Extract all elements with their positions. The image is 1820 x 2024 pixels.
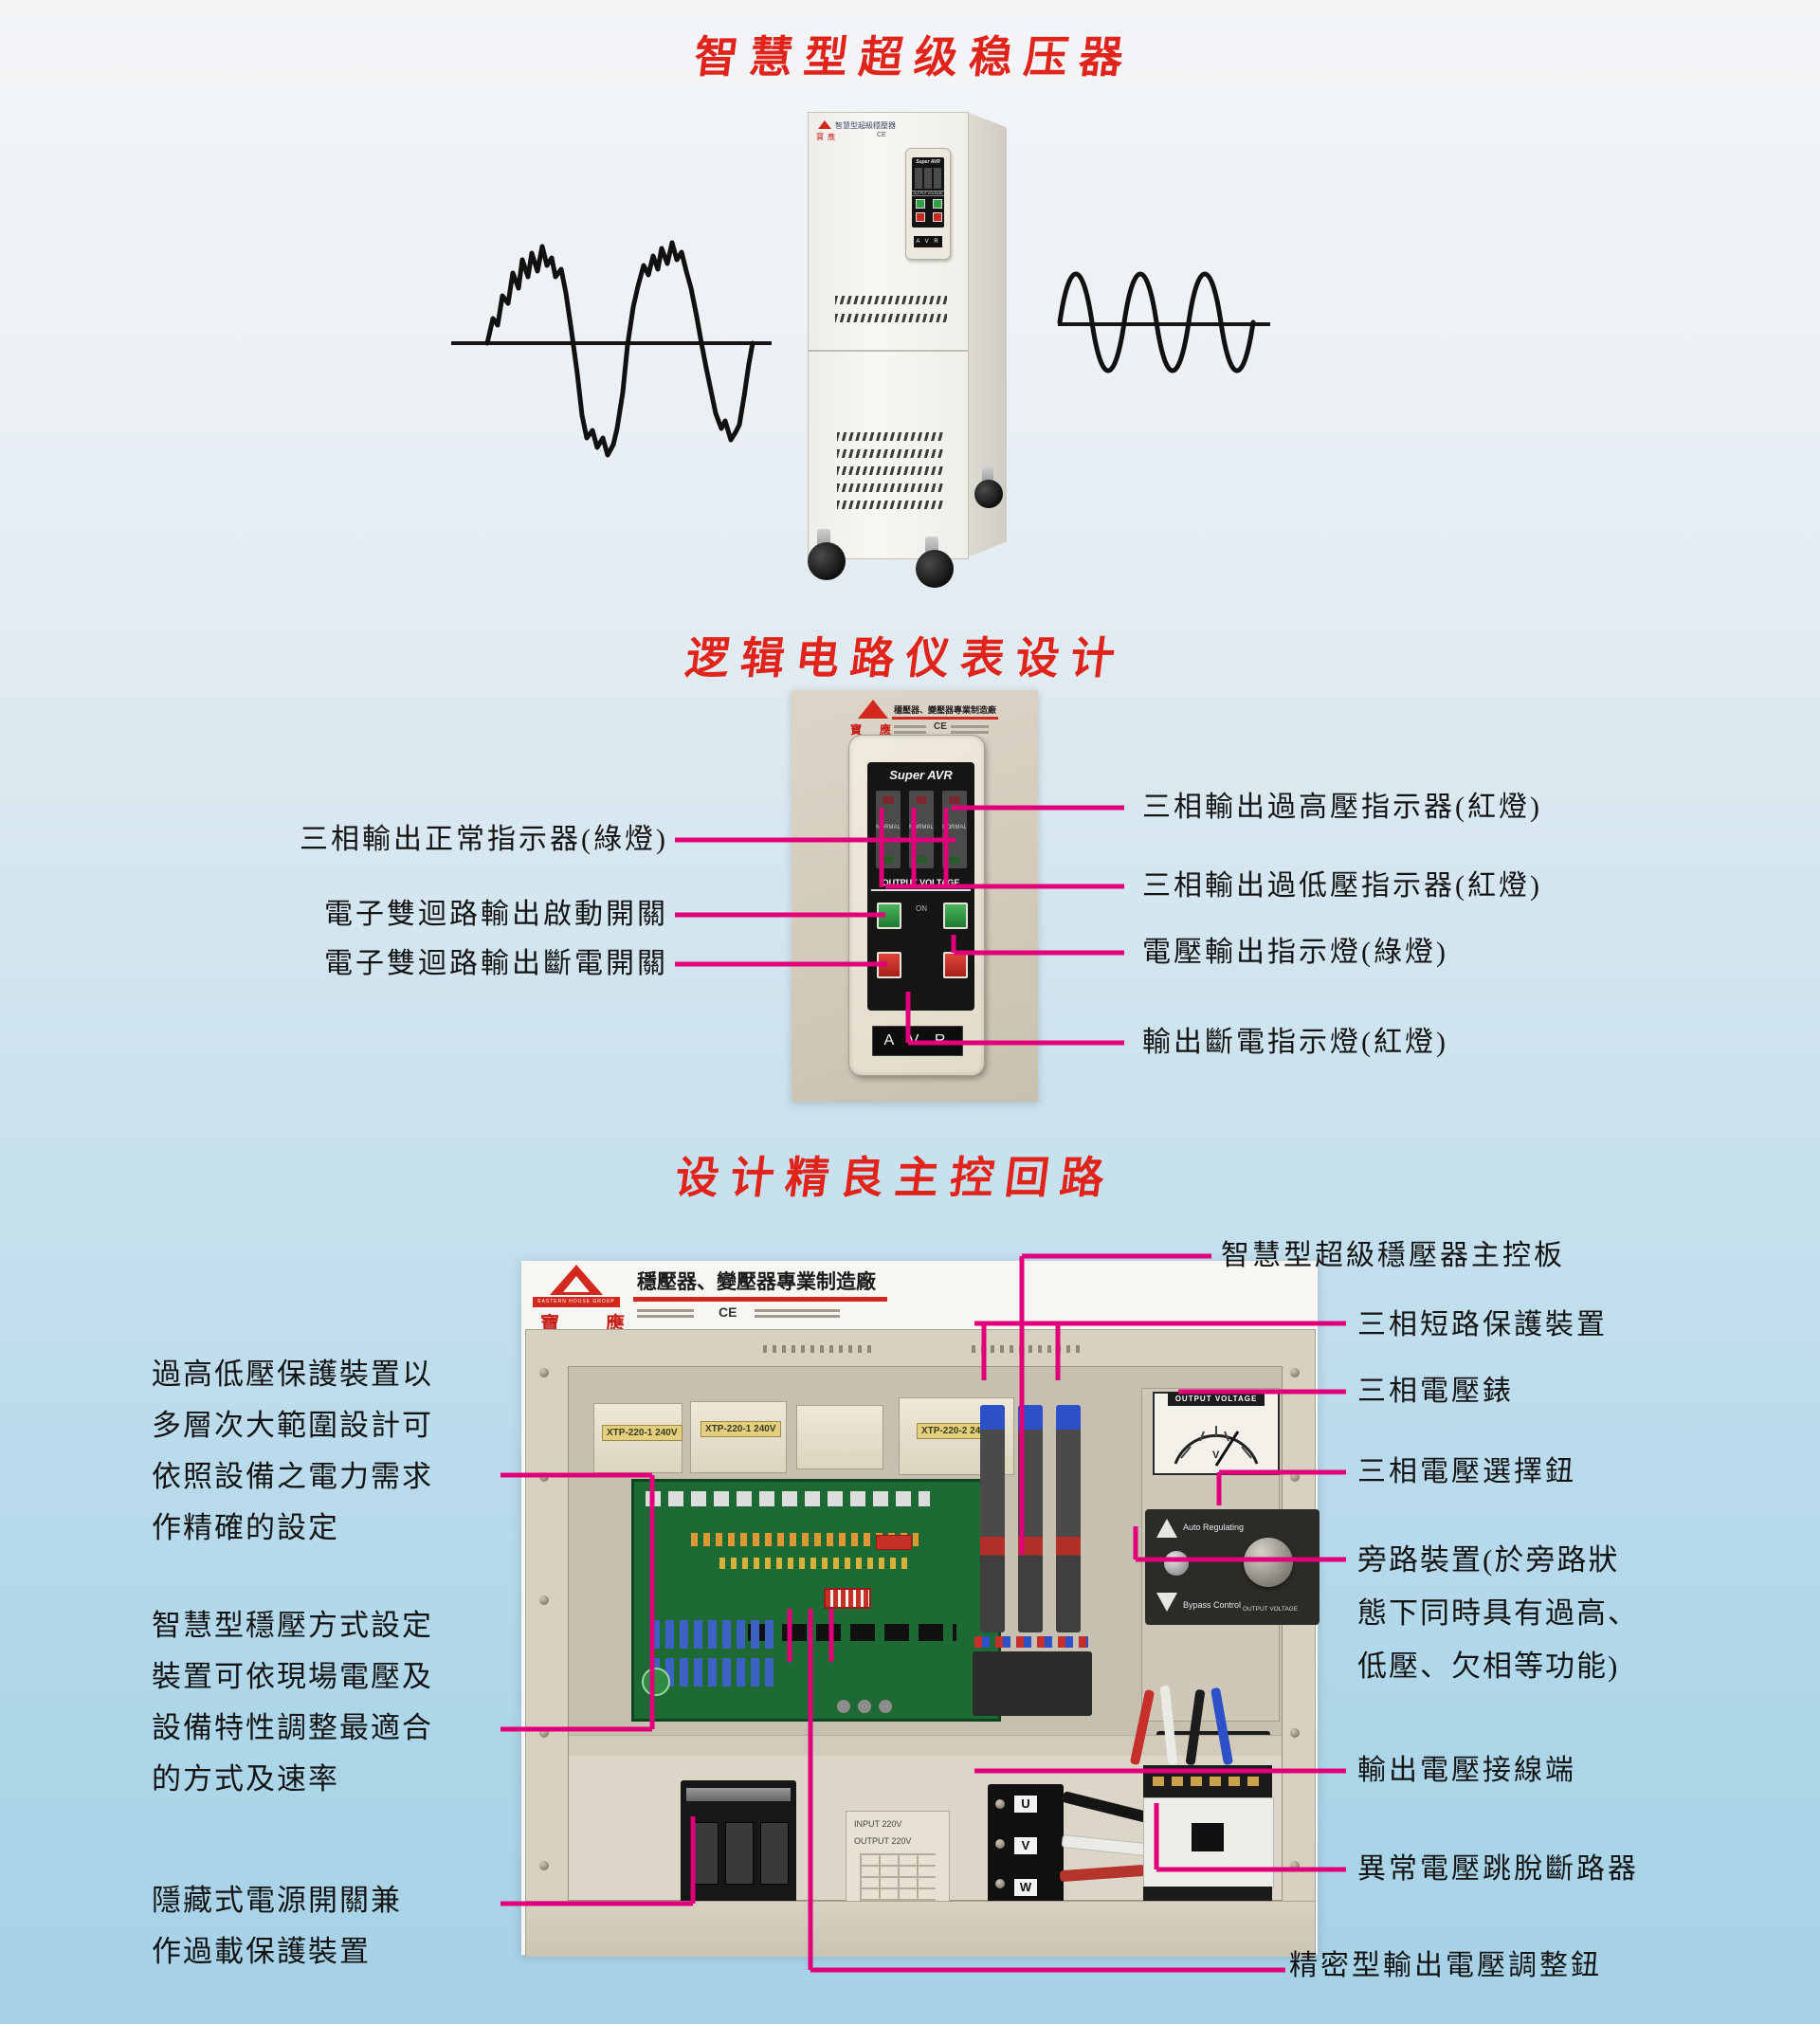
- voltage-meter: OUTPUT VOLTAGE V: [1153, 1392, 1280, 1475]
- callout-label: 電子雙迴路輸出斷電開關: [324, 947, 668, 981]
- control-panel-photo: 寶 應 穩壓器、變壓器專業制造廠 CE Super AVR NORMAL NOR…: [792, 690, 1038, 1102]
- cutoff-button-red: [943, 952, 968, 978]
- tower-red-button-1: [916, 212, 925, 222]
- logo-en-banner: EASTERN HOUSE GROUP: [533, 1297, 620, 1307]
- photo3-ce-mark: CE: [719, 1304, 737, 1320]
- cabinet-frame: XTP-220-1 240V XTP-220-1 240V XTP-220-2 …: [525, 1329, 1316, 1957]
- trip-contactor: [1143, 1765, 1272, 1909]
- callout-label: 三相電壓選擇鈕: [1357, 1455, 1576, 1489]
- photo3-tagline: 穩壓器、變壓器專業制造廠: [637, 1267, 876, 1295]
- tower-logo-cn: 寶應: [816, 132, 839, 142]
- tower-front-panel: 智慧型超級穩壓器 寶應 CE Super AVR OUTPUT VOLTAGE …: [808, 112, 969, 559]
- tower-vent-row: [835, 314, 947, 322]
- bypass-toggle: [1164, 1551, 1189, 1576]
- callout-label-block: 隱藏式電源開關兼 作過載保護裝置: [152, 1875, 402, 1978]
- tower-green-button-1: [916, 199, 925, 209]
- tower-vent-row: [835, 296, 947, 304]
- logo-underline: [633, 1297, 887, 1302]
- callout-label: 輸出電壓接線端: [1357, 1754, 1576, 1788]
- main-control-cabinet-photo: EASTERN HOUSE GROUP 寶 應 穩壓器、變壓器專業制造廠 CE …: [521, 1261, 1318, 1955]
- start-button-green: [877, 903, 901, 929]
- tower-top-label: 智慧型超級穩壓器: [835, 120, 896, 131]
- transformer: XTP-220-1 240V: [690, 1401, 787, 1473]
- tower-green-button-2: [933, 199, 942, 209]
- tower-panel-brand: Super AVR: [912, 159, 944, 165]
- short-circuit-fuse: [980, 1405, 1005, 1632]
- callout-label: 三相短路保護裝置: [1357, 1308, 1608, 1342]
- pcb-round-pad: [642, 1668, 670, 1696]
- pcb-blue-caps: [651, 1620, 774, 1649]
- cabinet-interior: XTP-220-1 240V XTP-220-1 240V XTP-220-2 …: [568, 1366, 1283, 1901]
- phase-indicator-column: NORMAL: [909, 791, 934, 868]
- trim-pot: [858, 1700, 871, 1713]
- hidden-power-breaker: [681, 1780, 796, 1921]
- fine-print: [637, 1306, 694, 1321]
- cutoff-button-red: [877, 952, 901, 978]
- up-arrow-icon: [1156, 1519, 1177, 1538]
- callout-label: 三相輸出過高壓指示器(紅燈): [1142, 791, 1542, 825]
- svg-text:V: V: [1212, 1450, 1220, 1461]
- section1-title: 智慧型超级稳压器: [691, 23, 1138, 85]
- main-control-board: [631, 1479, 1001, 1722]
- top-vent-dots: [763, 1345, 877, 1353]
- tower-panel-output-label: OUTPUT VOLTAGE: [912, 191, 944, 196]
- callout-label: 異常電壓跳脫斷路器: [1357, 1852, 1639, 1887]
- output-terminal-block: U V W: [988, 1784, 1064, 1909]
- tower-vent-row: [837, 449, 943, 458]
- phase-indicator-column: NORMAL: [942, 791, 967, 868]
- distorted-wave-figure: [446, 201, 777, 485]
- tower-indicator-3: [934, 168, 941, 189]
- tower-panel-screen: Super AVR OUTPUT VOLTAGE: [912, 157, 944, 228]
- trim-pot: [837, 1700, 850, 1713]
- callout-label: 電壓輸出指示燈(綠燈): [1142, 936, 1448, 970]
- trim-pot: [879, 1700, 892, 1713]
- pcb-component-row: [719, 1558, 909, 1569]
- tower-divider: [809, 350, 968, 352]
- callout-label: 輸出斷電指示燈(紅燈): [1142, 1026, 1448, 1060]
- brand-triangle-icon: [550, 1265, 603, 1295]
- fine-print: [755, 1306, 840, 1321]
- caster-wheel: [808, 542, 846, 580]
- caster-wheel: [916, 550, 954, 588]
- diagram-grid: [860, 1853, 936, 1901]
- top-vent-dots: [972, 1345, 1085, 1353]
- pcb-ic-row: [748, 1624, 956, 1641]
- caster-wheel: [974, 480, 1003, 508]
- callout-label: 精密型輸出電壓調整鈕: [1289, 1949, 1602, 1983]
- dip-switch-red: [824, 1588, 871, 1609]
- dip-switch-red: [876, 1535, 912, 1550]
- regulation-control-panel: Auto Regulating Bypass Control OUTPUT VO…: [1145, 1509, 1319, 1625]
- meter-title: OUTPUT VOLTAGE: [1168, 1392, 1265, 1406]
- callout-label-block: 過高低壓保護裝置以 多層次大範圍設計可 依照設備之電力需求 作精確的設定: [152, 1349, 433, 1554]
- callout-label: 三相輸出正常指示器(綠燈): [300, 823, 668, 857]
- callout-label: 三相輸出過低壓指示器(紅燈): [1142, 869, 1542, 903]
- tower-indicator-1: [915, 168, 922, 189]
- tower-ce-mark: CE: [877, 132, 886, 138]
- section2-title: 逻辑电路仪表设计: [682, 624, 1130, 686]
- transformer: XTP-220-1 240V: [593, 1403, 682, 1473]
- section3-title: 设计精良主控回路: [672, 1143, 1119, 1206]
- panel-screen: Super AVR NORMAL NORMAL NORMAL OUTPUT VO…: [867, 762, 974, 1011]
- input-label: INPUT 220V: [854, 1819, 901, 1829]
- tower-control-panel: Super AVR OUTPUT VOLTAGE A V R: [905, 148, 951, 260]
- photo2-tagline: 穩壓器、變壓器專業制造廠: [894, 703, 996, 716]
- callout-label: 智慧型超級穩壓器主控板: [1221, 1239, 1565, 1273]
- short-circuit-fuse: [1018, 1405, 1043, 1632]
- clean-sine-wave-figure: [1054, 245, 1277, 396]
- tower-vent-row: [837, 466, 943, 475]
- brand-triangle-icon: [818, 120, 831, 129]
- transformer: [796, 1405, 883, 1469]
- avr-nameplate: A V R: [872, 1026, 963, 1056]
- callout-label: 電子雙迴路輸出啟動開關: [324, 898, 668, 932]
- tower-vent-row: [837, 432, 943, 441]
- output-label: OUTPUT 220V: [854, 1836, 911, 1846]
- cabinet-bottom-rail: [526, 1901, 1315, 1957]
- tower-red-button-2: [933, 212, 942, 222]
- down-arrow-icon: [1156, 1593, 1177, 1612]
- short-circuit-fuse: [1056, 1405, 1081, 1632]
- panel-bezel: Super AVR NORMAL NORMAL NORMAL OUTPUT VO…: [848, 735, 985, 1076]
- photo2-ce-mark: CE: [934, 721, 947, 732]
- callout-label-block: 智慧型穩壓方式設定 裝置可依現場電壓及 設備特性調整最適合 的方式及速率: [152, 1600, 433, 1805]
- tower-indicator-2: [924, 168, 932, 189]
- panel-brand: Super AVR: [867, 768, 974, 782]
- logo-underline: [892, 717, 998, 720]
- callout-label: 三相電壓錶: [1357, 1375, 1514, 1409]
- phase-indicator-column: NORMAL: [876, 791, 901, 868]
- tower-vent-row: [837, 501, 943, 509]
- brand-triangle-icon: [858, 700, 888, 719]
- knob-label: OUTPUT VOLTAGE: [1232, 1606, 1308, 1613]
- on-label: ON: [909, 904, 934, 913]
- start-button-green: [943, 903, 968, 929]
- stabilizer-tower-photo: 智慧型超級穩壓器 寶應 CE Super AVR OUTPUT VOLTAGE …: [796, 104, 1024, 607]
- auto-regulating-label: Auto Regulating: [1183, 1523, 1244, 1532]
- relay-wiring: [974, 1636, 1088, 1648]
- voltage-selector-knob: [1244, 1538, 1293, 1587]
- meter-face: V: [1162, 1409, 1270, 1469]
- output-voltage-label: OUTPUT VOLTAGE: [871, 878, 971, 891]
- pcb-connector-row: [646, 1491, 930, 1506]
- tower-vent-row: [837, 483, 943, 492]
- tower-avr-label: A V R: [914, 236, 942, 247]
- callout-label-block: 旁路裝置(於旁路狀 態下同時具有過高、 低壓、欠相等功能): [1357, 1534, 1639, 1693]
- relay-block: [973, 1651, 1092, 1716]
